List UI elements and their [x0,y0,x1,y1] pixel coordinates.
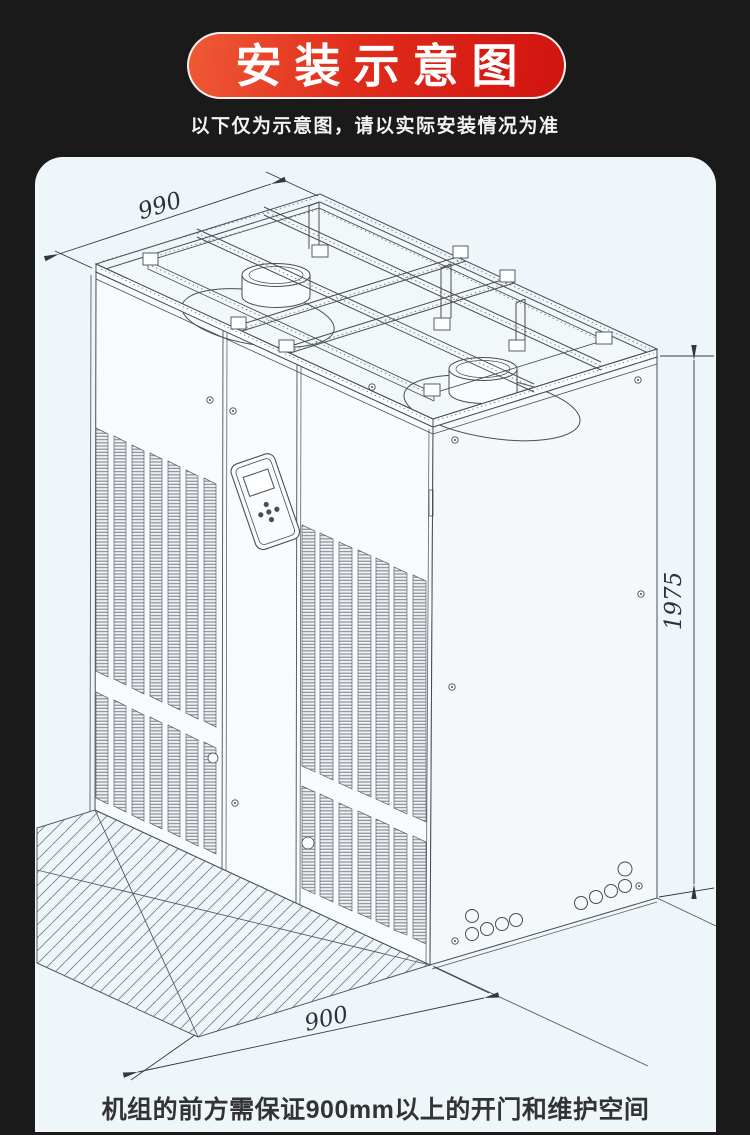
dimension-label-height: 1975 [661,572,687,631]
dimension-label-clearance: 900 [302,1002,351,1037]
front-louver-grille-left [96,428,216,854]
dimension-label-depth: 990 [135,187,185,225]
cabinet-installation-diagram: 990 1975 900 [0,0,750,1135]
grille-hole [208,753,218,763]
grille-hole [302,837,314,849]
caption-text: 机组的前方需保证900mm以上的开门和维护空间 [35,1090,716,1126]
